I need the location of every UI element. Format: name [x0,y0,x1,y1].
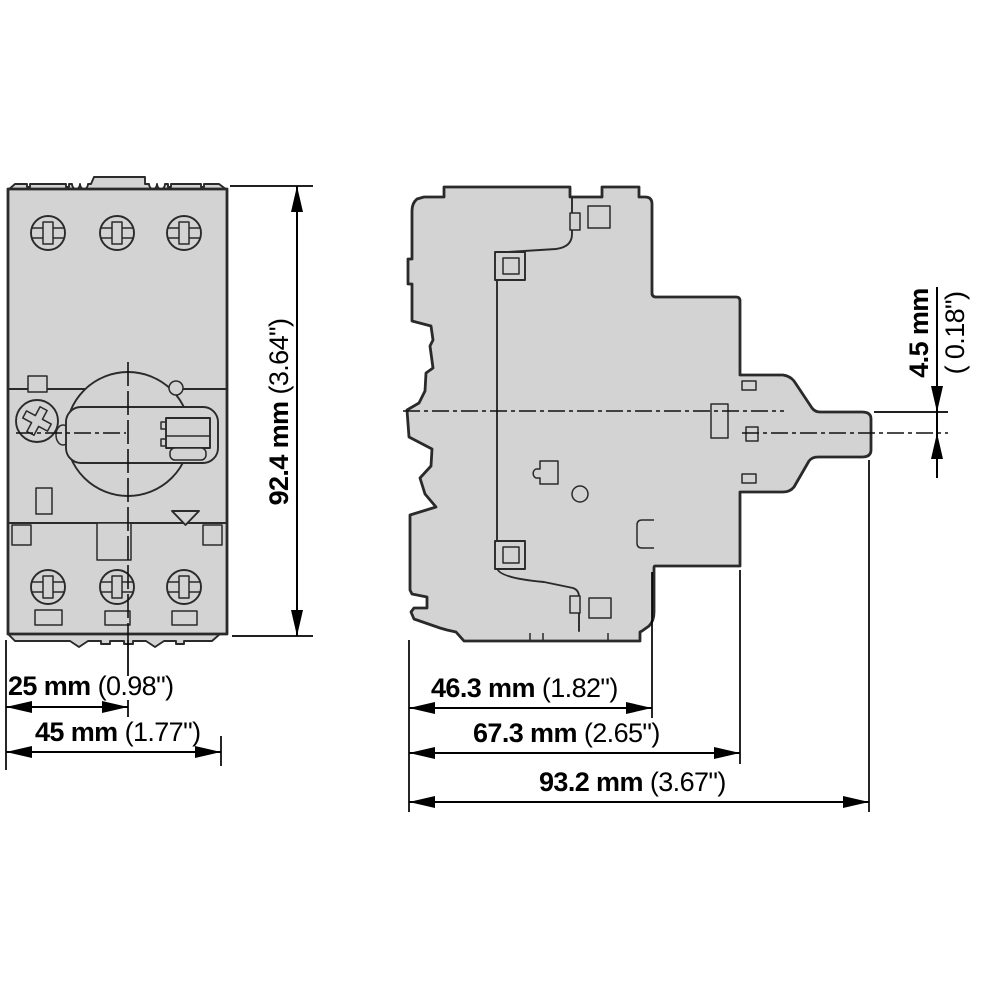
snap-clip-inner [503,547,519,563]
side-view [403,187,948,641]
arrowhead-left [409,747,435,759]
adjustment-dial [16,400,58,442]
dim-knob-offset: 4.5 mm ( 0.18") [874,287,970,478]
dim-body-depth-label: 46.3 mm(1.82") [431,673,618,703]
arrowhead-up [291,186,303,212]
front-window-lower-left [36,488,52,514]
arrowhead-right [195,746,221,758]
side-tab [570,596,580,613]
terminal-screw [100,570,134,604]
terminal-screw [31,216,65,250]
arrowhead-left [409,796,435,808]
snap-clip-inner [503,258,519,274]
arrowhead-down [291,610,303,636]
terminal-screw [100,216,134,250]
arrowhead-left [409,702,435,714]
dim-total-width-label: 45 mm(1.77") [35,717,200,747]
knob-base-square [746,427,758,441]
dimension-drawing: 92.4 mm(3.64") 25 mm(0.98") 45 mm(1.77") [0,0,1000,1000]
arrowhead-down [931,386,943,412]
terminal-screw [31,570,65,604]
terminal-window [97,523,131,560]
bottom-feet-strip [8,634,220,647]
arrowhead-left [6,701,32,713]
arrowhead-up [931,433,943,459]
dim-pole-width-label: 25 mm(0.98") [8,671,173,701]
side-tab [570,213,580,230]
front-view [8,177,227,647]
dim-height: 92.4 mm(3.64") [230,186,313,636]
arrowhead-right [843,796,869,808]
terminal-slot [105,611,130,625]
dim-total-width: 45 mm(1.77") [6,717,221,766]
side-window [588,206,610,228]
terminal-window [203,525,222,545]
terminal-slot [35,610,62,625]
terminal-screw [167,216,201,250]
knob-base-step [742,381,756,390]
dim-height-label: 92.4 mm(3.64") [264,319,294,506]
arrowhead-right [714,747,740,759]
arrowhead-right [102,701,128,713]
dim-knob-offset-label-mm: 4.5 mm [904,288,934,377]
dim-total-depth-label: 93.2 mm(3.67") [539,767,726,797]
right-edge-tab [637,520,654,548]
front-window-upper-left [28,376,47,392]
terminal-window [12,525,31,545]
arrowhead-right [626,702,652,714]
dim-depth-to-knob-label: 67.3 mm(2.65") [473,718,660,748]
arrowhead-left [6,746,32,758]
knob-rim-nub [169,381,183,395]
side-hole [572,486,588,502]
terminal-slot [172,611,197,625]
terminal-screw [167,570,201,604]
knob-base-step [742,474,756,483]
dim-knob-offset-label-inch: ( 0.18") [940,292,970,375]
front-face-window [711,404,728,438]
side-body [407,187,871,641]
side-window [589,598,611,618]
